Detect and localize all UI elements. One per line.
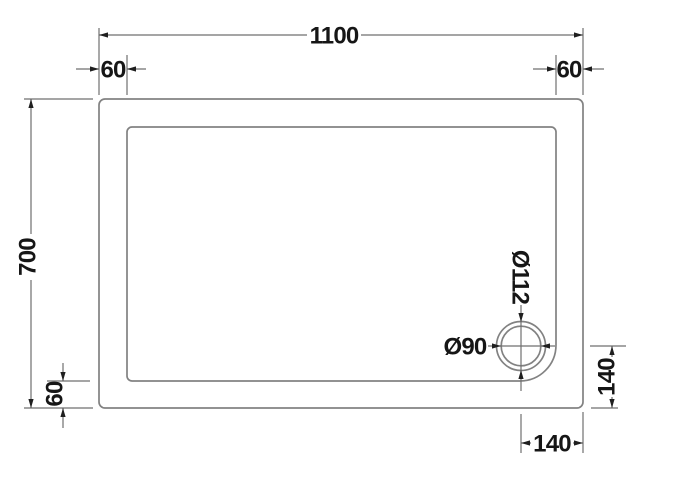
technical-drawing-canvas: 1100 60 60 700 60 Ø112 Ø90	[0, 0, 675, 477]
dimension-label-edge-bottom-left: 60	[42, 381, 69, 407]
dimension-label-waste-center-to-right: 140	[533, 431, 571, 458]
dimension-overall-width: 1100	[99, 23, 583, 96]
dimension-label-overall-depth: 700	[15, 238, 42, 276]
dimension-waste-center-to-bottom: 140	[590, 346, 626, 408]
dimension-edge-bottom-left: 60	[42, 363, 91, 428]
arrowhead-dia112-bottom	[518, 370, 523, 379]
arrowhead-right	[574, 440, 583, 445]
dimension-label-waste-inner-diameter: Ø90	[444, 334, 487, 361]
dimension-edge-top-right: 60	[533, 55, 604, 95]
arrowhead-left	[521, 440, 530, 445]
tray-inner-edge	[127, 127, 556, 381]
arrowhead-top	[28, 99, 33, 108]
arrowhead-left	[99, 32, 108, 37]
dimension-label-edge-top-right: 60	[556, 57, 582, 84]
dimension-label-waste-center-to-bottom: 140	[594, 358, 621, 396]
dimension-label-overall-width: 1100	[310, 23, 359, 50]
dimension-edge-top-left: 60	[76, 55, 146, 95]
dimension-waste-center-to-right: 140	[521, 412, 583, 458]
shower-tray-drawing: 1100 60 60 700 60 Ø112 Ø90	[0, 0, 675, 477]
arrowhead-right	[574, 32, 583, 37]
arrowhead-right	[583, 66, 592, 71]
arrowhead-bottom	[60, 408, 65, 417]
dimension-overall-depth: 700	[15, 99, 94, 408]
arrowhead-top	[609, 346, 614, 355]
arrowhead-left	[90, 66, 99, 71]
arrowhead-bottom	[609, 399, 614, 408]
arrowhead-top	[60, 372, 65, 381]
dimension-label-edge-top-left: 60	[100, 57, 126, 84]
arrowhead-right	[127, 66, 136, 71]
arrowhead-left	[547, 66, 556, 71]
arrowhead-bottom	[28, 399, 33, 408]
dimension-label-waste-outer-diameter: Ø112	[507, 250, 534, 305]
arrowhead-dia112-top	[518, 313, 523, 322]
